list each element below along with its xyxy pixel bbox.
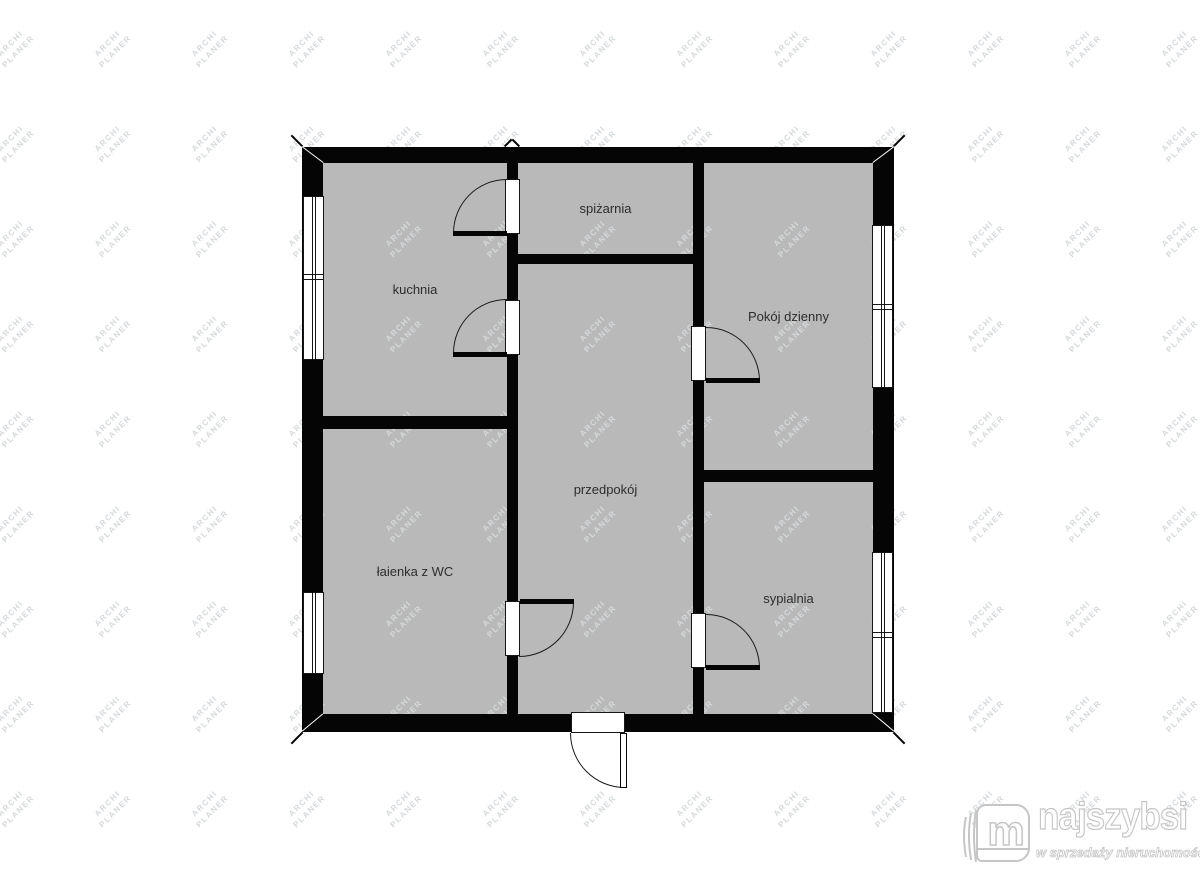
logo-tagline-text: w sprzedaży nieruchomości [1036,845,1184,860]
window-frame-line [312,197,316,359]
room-label-przedpokoj: przedpokój [574,482,638,497]
door-leaf-sypialnia [706,665,760,670]
room-sypialnia: sypialnia [704,482,873,714]
wall-kuchnia-lazienka [323,416,507,429]
window-pokoj-dzienny [872,225,893,388]
door-opening-lazienka-przedpokoj [505,601,520,656]
window-split-line [873,632,892,633]
room-label-spizarnia: spiżarnia [579,201,631,216]
door-opening-kuchnia-przedpokoj [505,300,520,355]
logo-brand-text: najszybsi [1038,798,1187,836]
entrance-door-opening [571,712,625,733]
room-lazienka: łaienka z WC [323,429,507,714]
room-label-lazienka: łaienka z WC [377,564,454,579]
window-split-line [873,304,892,305]
door-leaf-pokoj-dzienny [706,378,760,383]
door-opening-kuchnia-spizarnia [505,179,520,234]
logo-m-book-icon: m [956,800,1036,870]
window-sypialnia [872,552,893,713]
room-spizarnia: spiżarnia [518,163,693,254]
floor-plan-image: ARCHIPLANERARCHIPLANERARCHIPLANERARCHIPL… [0,0,1200,878]
door-leaf-kuchnia-spizarnia [453,231,507,236]
room-label-kuchnia: kuchnia [393,282,438,297]
wall-exterior-top [302,147,894,163]
window-split-line [873,309,892,310]
room-label-sypialnia: sypialnia [763,591,814,606]
door-leaf-lazienka [520,599,574,604]
door-opening-przedpokoj-pokoj-dzienny [691,326,706,381]
wall-spizarnia-przedpokoj [518,254,693,264]
door-opening-przedpokoj-sypialnia [691,613,706,668]
window-frame-line [312,593,316,673]
window-split-line [304,274,323,275]
window-split-line [304,279,323,280]
room-label-pokoj-dzienny: Pokój dzienny [748,309,829,324]
brand-logo: m najszybsi w sprzedaży nieruchomości [956,796,1200,876]
svg-text:m: m [987,807,1024,854]
window-frame-line [881,226,885,387]
entrance-door-leaf [620,733,627,788]
window-kuchnia [303,196,324,360]
wall-pokoj-sypialnia [704,470,873,482]
window-split-line [873,637,892,638]
window-lazienka [303,592,324,674]
door-leaf-kuchnia-przedpokoj [453,352,507,357]
room-pokoj-dzienny: Pokój dzienny [704,163,873,470]
